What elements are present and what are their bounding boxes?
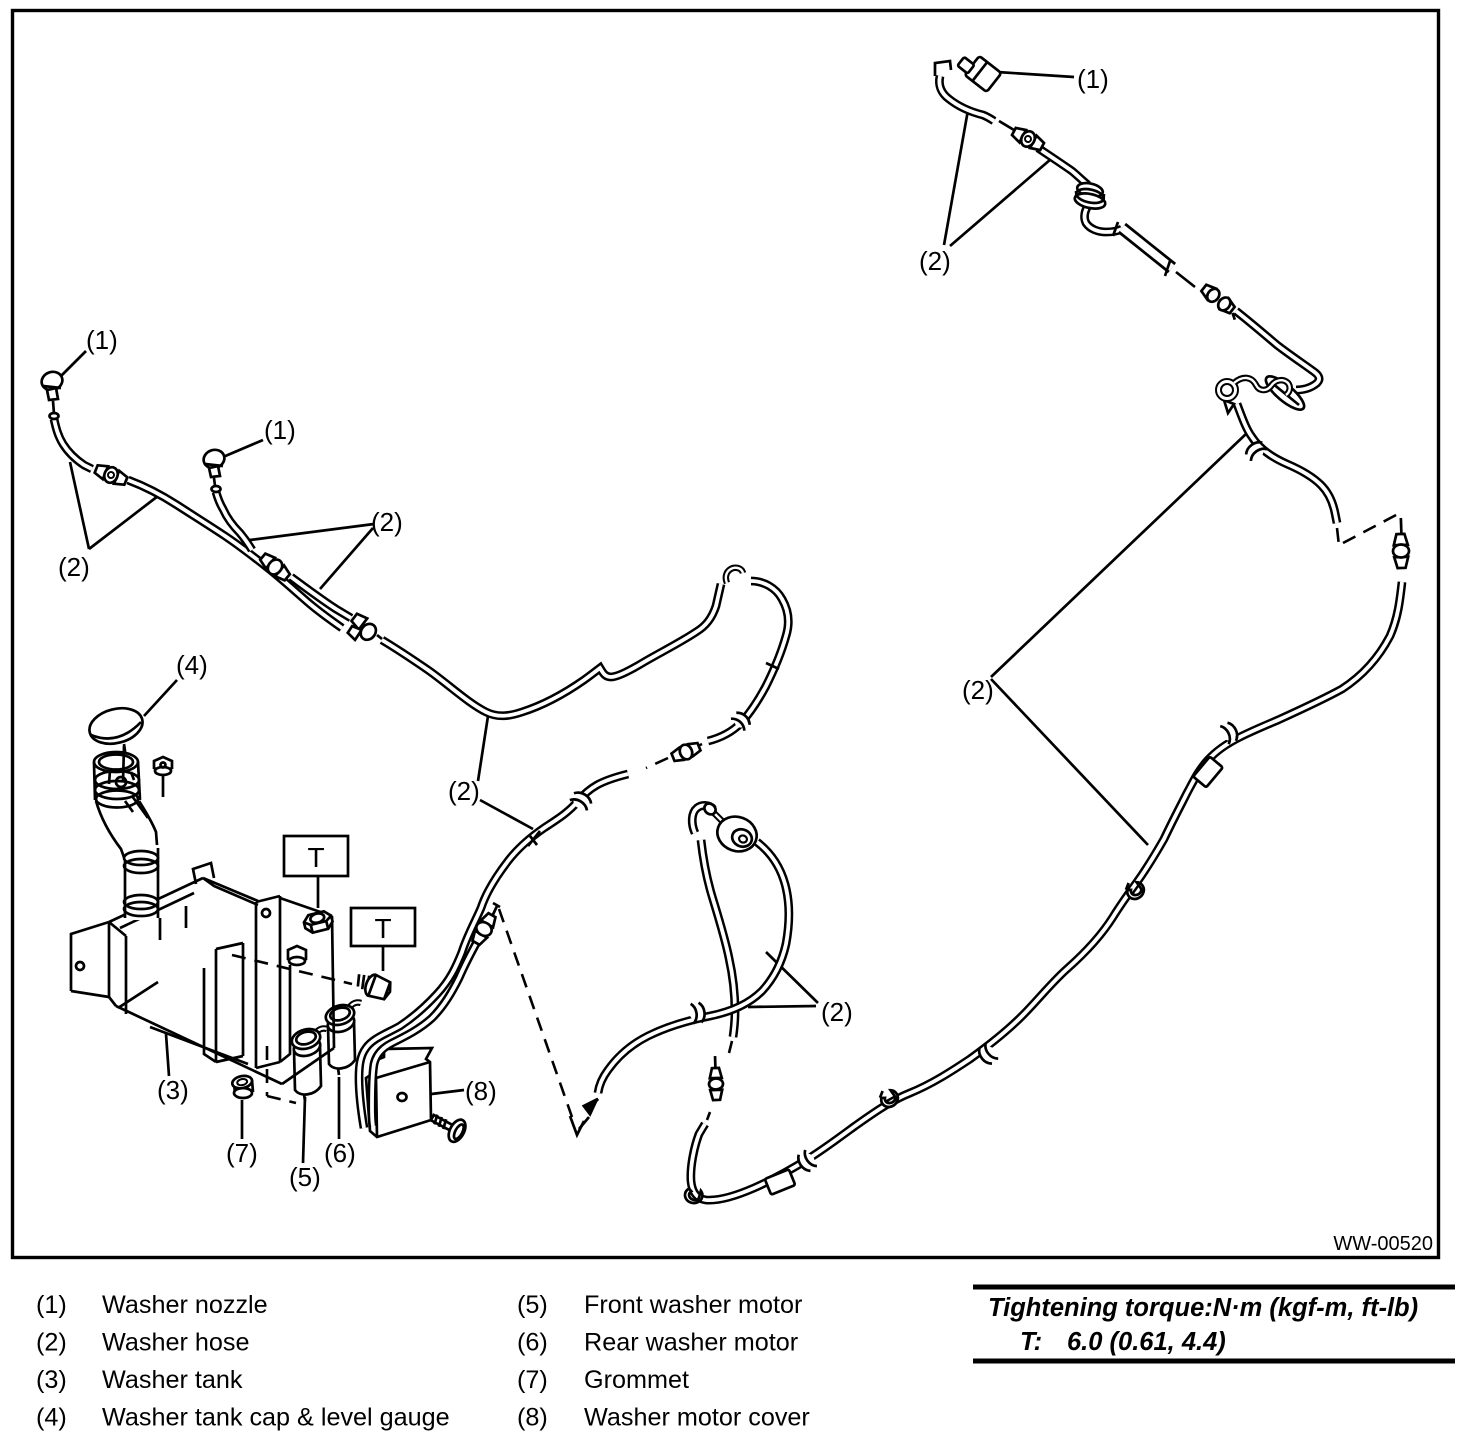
svg-text:(3): (3) xyxy=(36,1366,67,1394)
svg-text:(4): (4) xyxy=(176,650,208,680)
svg-text:(8): (8) xyxy=(465,1076,497,1106)
svg-text:6.0 (0.61, 4.4): 6.0 (0.61, 4.4) xyxy=(1067,1328,1226,1356)
svg-text:(2): (2) xyxy=(821,997,853,1027)
svg-text:(2): (2) xyxy=(58,552,90,582)
svg-text:Front washer motor: Front washer motor xyxy=(584,1291,802,1319)
svg-text:Rear washer motor: Rear washer motor xyxy=(584,1329,798,1357)
svg-text:Tightening torque:N·m (kgf-m,: Tightening torque:N·m (kgf-m, ft-lb) xyxy=(988,1294,1418,1322)
svg-text:Washer hose: Washer hose xyxy=(102,1329,249,1357)
svg-text:WW-00520: WW-00520 xyxy=(1333,1233,1433,1255)
svg-text:(7): (7) xyxy=(517,1366,548,1394)
svg-text:(1): (1) xyxy=(86,325,118,355)
svg-text:Washer tank cap & level gauge: Washer tank cap & level gauge xyxy=(102,1404,450,1432)
svg-text:(1): (1) xyxy=(36,1291,67,1319)
svg-text:Washer nozzle: Washer nozzle xyxy=(102,1291,268,1319)
svg-text:(2): (2) xyxy=(36,1329,67,1357)
svg-text:(2): (2) xyxy=(919,246,951,276)
svg-text:(1): (1) xyxy=(1077,64,1109,94)
svg-text:(2): (2) xyxy=(371,507,403,537)
svg-text:Grommet: Grommet xyxy=(584,1366,689,1394)
svg-text:T:: T: xyxy=(1020,1328,1042,1356)
svg-text:(3): (3) xyxy=(157,1075,189,1105)
svg-text:(6): (6) xyxy=(324,1138,356,1168)
svg-text:(4): (4) xyxy=(36,1404,67,1432)
svg-text:(1): (1) xyxy=(264,415,296,445)
svg-text:(8): (8) xyxy=(517,1404,548,1432)
svg-text:T: T xyxy=(307,842,324,873)
svg-text:Washer motor cover: Washer motor cover xyxy=(584,1404,810,1432)
svg-text:(5): (5) xyxy=(289,1162,321,1192)
svg-text:(2): (2) xyxy=(448,776,480,806)
svg-text:(2): (2) xyxy=(962,675,994,705)
svg-text:Washer tank: Washer tank xyxy=(102,1366,243,1394)
svg-text:(5): (5) xyxy=(517,1291,548,1319)
svg-text:T: T xyxy=(374,913,391,944)
svg-text:(7): (7) xyxy=(226,1138,258,1168)
svg-text:(6): (6) xyxy=(517,1329,548,1357)
